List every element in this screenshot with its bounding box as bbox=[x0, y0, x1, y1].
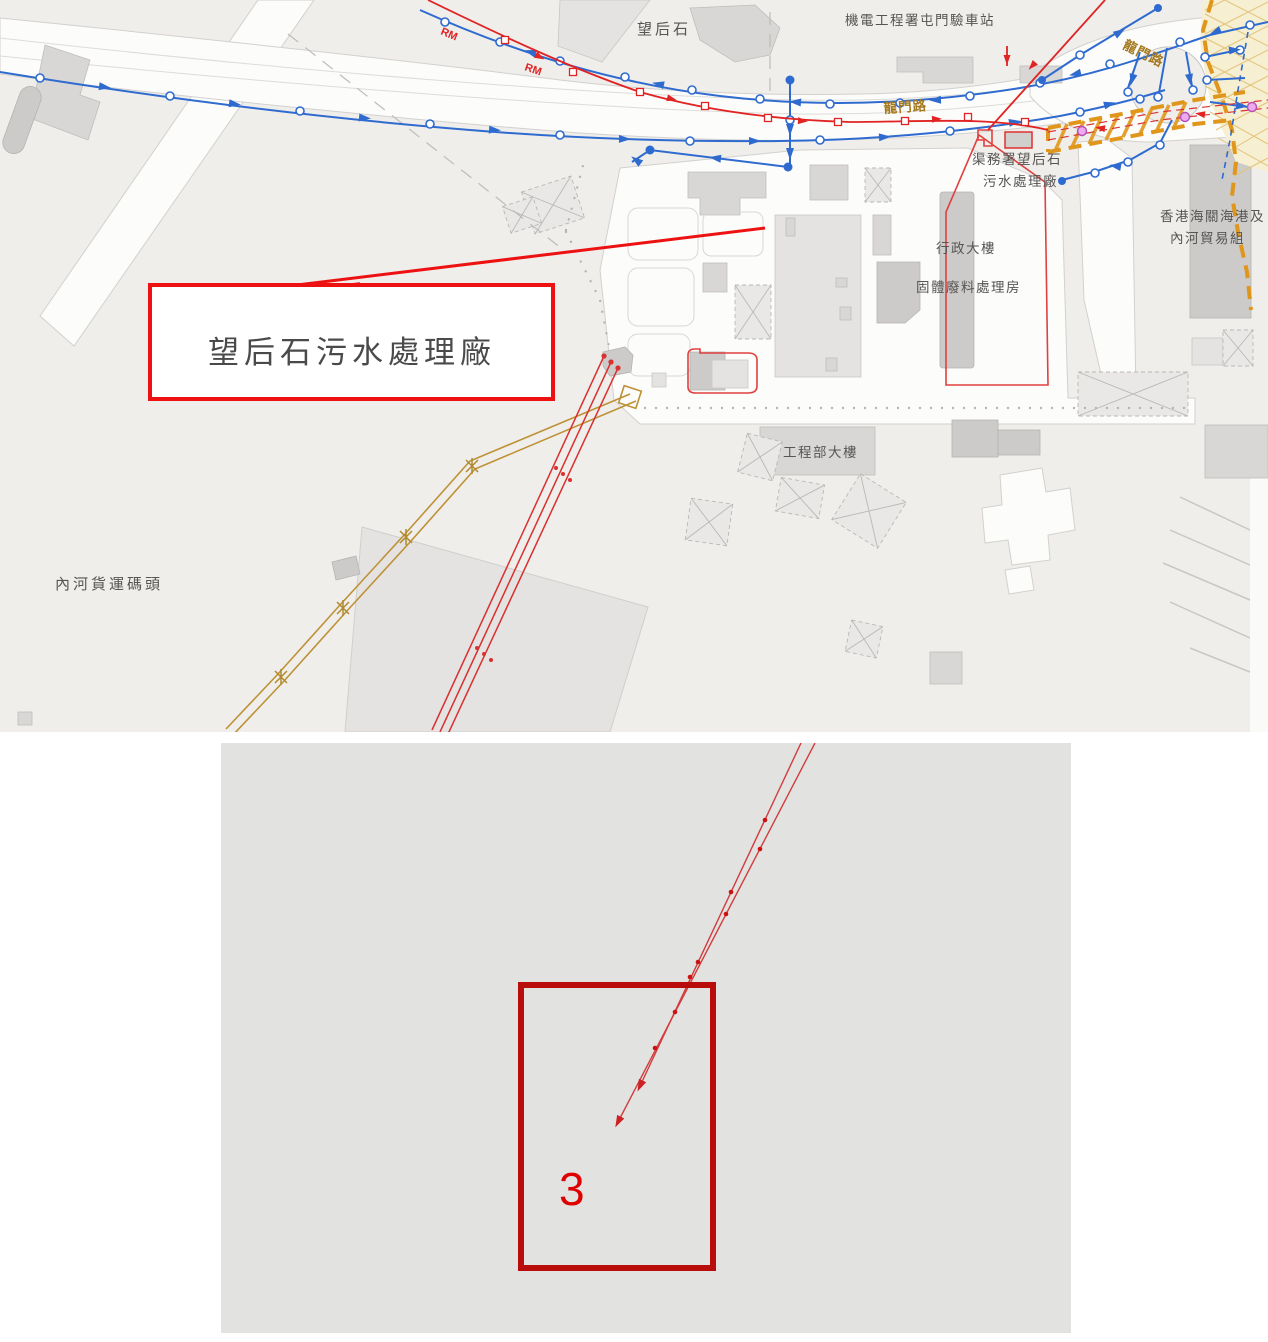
label-solid-waste: 固體廢料處理房 bbox=[916, 280, 1021, 295]
label-dsd-plant-2: 污水處理廠 bbox=[983, 173, 1058, 189]
callout-label: 望后石污水處理廠 bbox=[208, 335, 496, 370]
map-application-page: 望后石 機電工程署屯門驗車站 龍門路 龍門路 渠務署望后石 污水處理廠 行政大樓… bbox=[0, 0, 1268, 1342]
zone-3-label: 3 bbox=[559, 1163, 585, 1215]
label-engineering-building: 工程部大樓 bbox=[783, 445, 858, 460]
label-river-trade-terminal: 內河貨運碼頭 bbox=[55, 576, 163, 593]
gis-map-canvas[interactable]: 望后石 機電工程署屯門驗車站 龍門路 龍門路 渠務署望后石 污水處理廠 行政大樓… bbox=[0, 0, 1268, 732]
map-svg: 望后石 機電工程署屯門驗車站 龍門路 龍門路 渠務署望后石 污水處理廠 行政大樓… bbox=[0, 0, 1268, 732]
label-admin-building: 行政大樓 bbox=[936, 241, 996, 256]
label-lung-mun-road-1: 龍門路 bbox=[883, 97, 928, 116]
label-dsd-plant-1: 渠務署望后石 bbox=[972, 152, 1062, 167]
label-customs-2: 內河貿易組 bbox=[1170, 231, 1245, 246]
label-emsd-station: 機電工程署屯門驗車站 bbox=[845, 13, 995, 28]
label-customs-1: 香港海關海港及 bbox=[1160, 209, 1265, 224]
inset-svg: 3 bbox=[221, 743, 1071, 1333]
detail-inset-panel[interactable]: 3 bbox=[221, 743, 1071, 1333]
inset-background bbox=[221, 743, 1071, 1333]
label-mong-hau-shek: 望后石 bbox=[637, 21, 691, 38]
